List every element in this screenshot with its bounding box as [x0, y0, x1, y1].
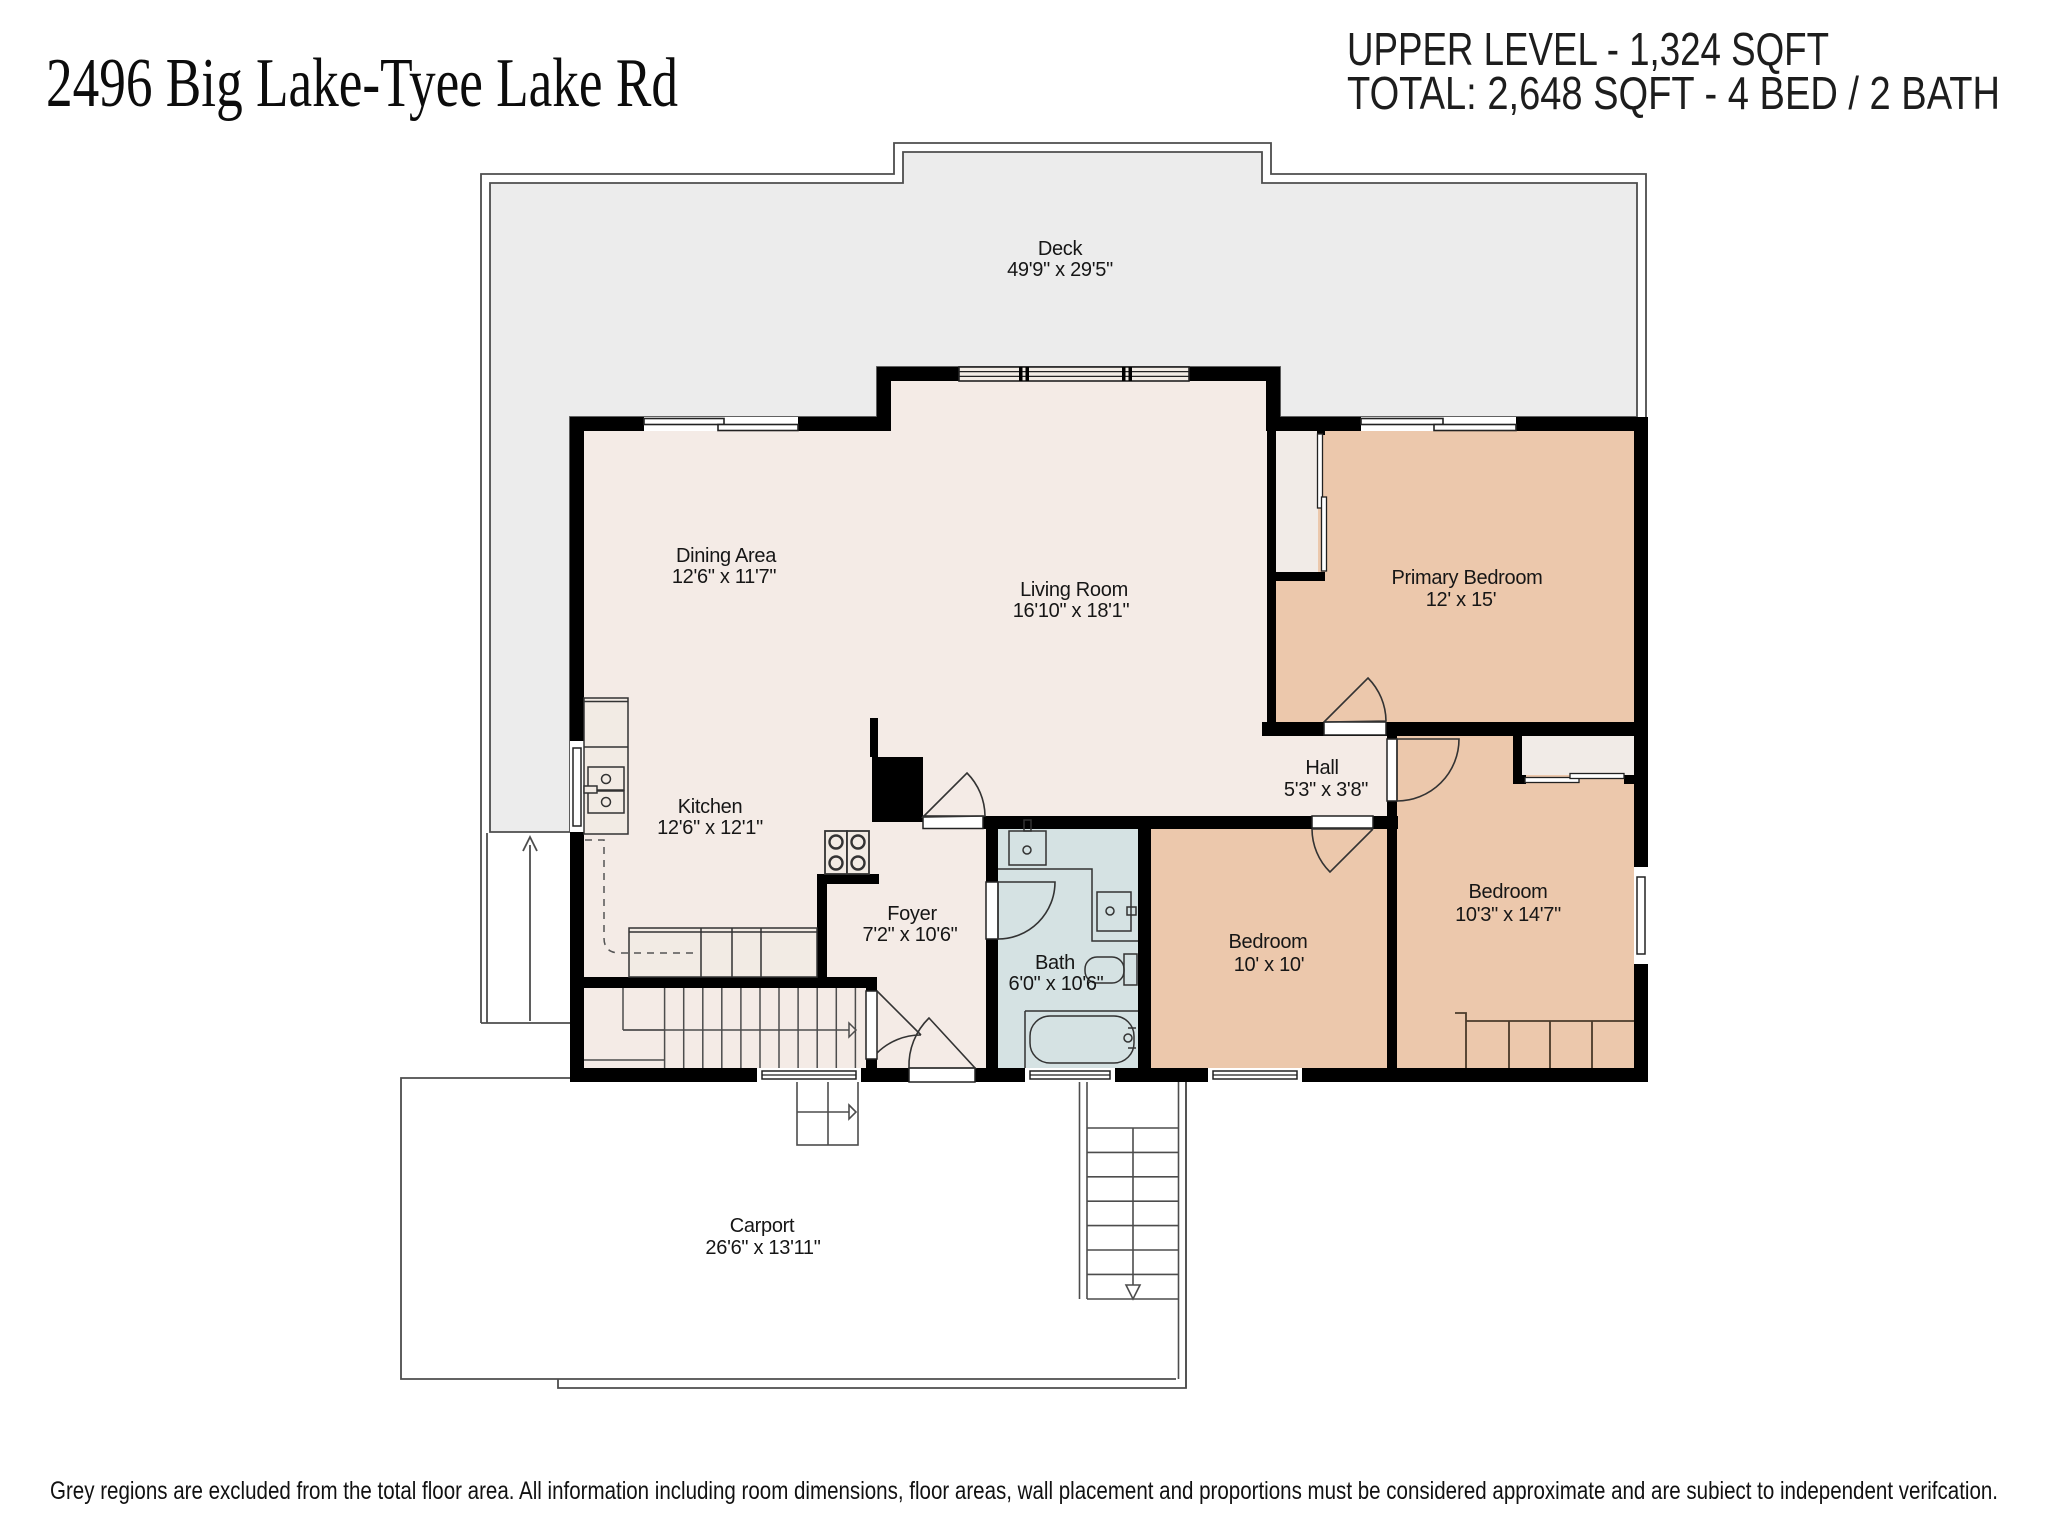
- svg-text:10'3" x 14'7": 10'3" x 14'7": [1455, 904, 1561, 926]
- svg-text:Bedroom: Bedroom: [1228, 931, 1307, 953]
- svg-text:49'9" x 29'5": 49'9" x 29'5": [1007, 259, 1113, 281]
- svg-text:10' x 10': 10' x 10': [1234, 954, 1305, 976]
- svg-text:26'6" x 13'11": 26'6" x 13'11": [705, 1237, 820, 1259]
- svg-text:6'0" x 10'6": 6'0" x 10'6": [1009, 973, 1104, 995]
- svg-text:Kitchen: Kitchen: [678, 796, 743, 818]
- svg-text:Carport: Carport: [730, 1215, 795, 1237]
- svg-text:Foyer: Foyer: [887, 903, 937, 925]
- svg-text:Bath: Bath: [1035, 952, 1075, 974]
- svg-text:Hall: Hall: [1305, 757, 1338, 779]
- svg-text:5'3" x 3'8": 5'3" x 3'8": [1284, 779, 1368, 801]
- svg-text:12' x 15': 12' x 15': [1426, 589, 1497, 611]
- svg-text:12'6" x 11'7": 12'6" x 11'7": [672, 566, 777, 588]
- svg-text:Bedroom: Bedroom: [1468, 881, 1547, 903]
- svg-text:Living Room: Living Room: [1020, 579, 1128, 601]
- svg-text:Dining Area: Dining Area: [676, 545, 777, 567]
- svg-text:16'10" x 18'1": 16'10" x 18'1": [1013, 600, 1130, 622]
- svg-text:Grey regions are excluded from: Grey regions are excluded from the total…: [50, 1477, 1998, 1505]
- svg-text:2496 Big Lake-Tyee Lake Rd: 2496 Big Lake-Tyee Lake Rd: [46, 45, 678, 122]
- svg-text:12'6" x 12'1": 12'6" x 12'1": [657, 817, 763, 839]
- svg-text:TOTAL: 2,648 SQFT - 4 BED / 2: TOTAL: 2,648 SQFT - 4 BED / 2 BATH: [1347, 67, 2000, 119]
- svg-text:Primary Bedroom: Primary Bedroom: [1391, 567, 1542, 589]
- svg-text:7'2" x 10'6": 7'2" x 10'6": [863, 924, 958, 946]
- svg-text:Deck: Deck: [1038, 238, 1084, 260]
